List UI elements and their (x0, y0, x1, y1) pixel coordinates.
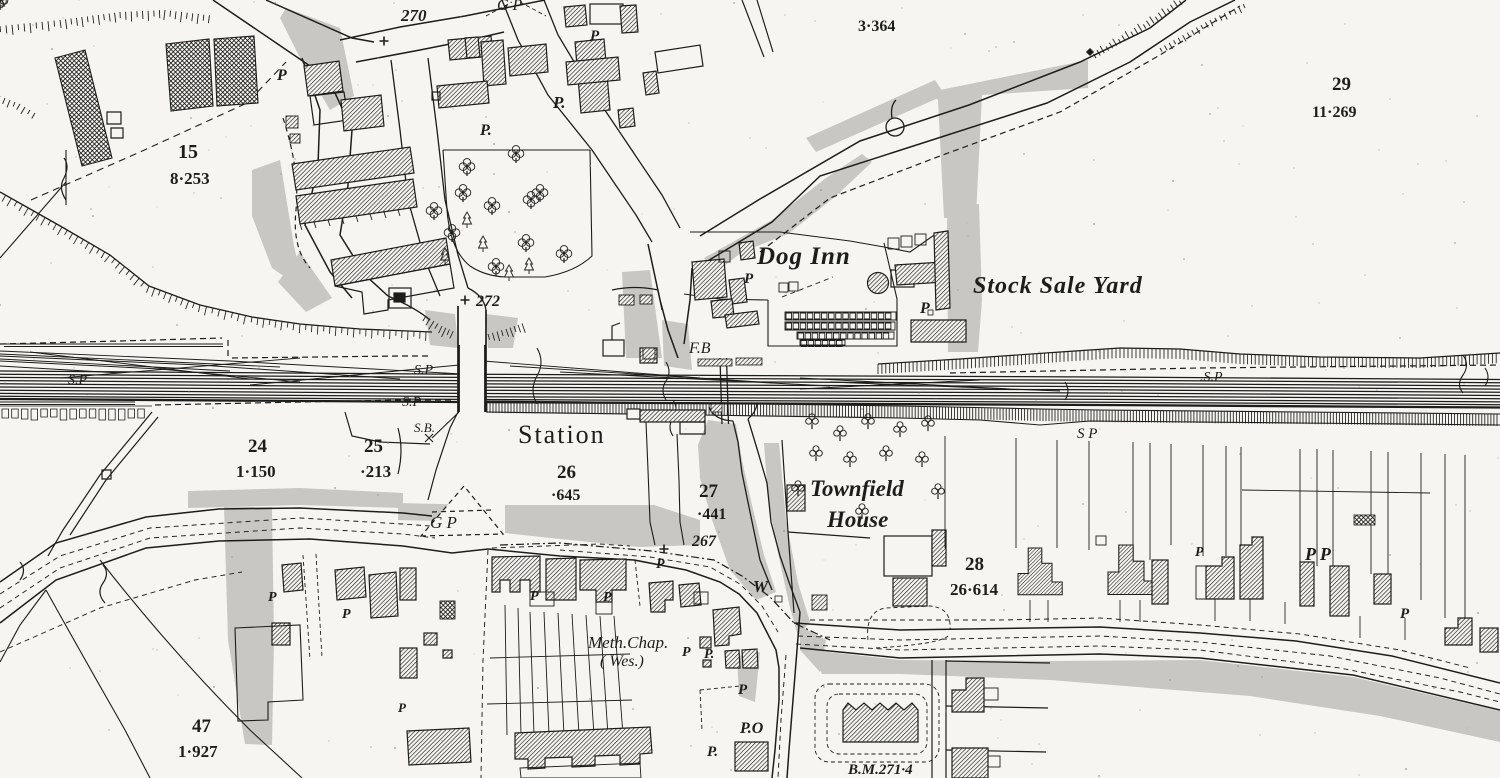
svg-text:25: 25 (364, 436, 383, 457)
svg-text:28: 28 (965, 554, 984, 575)
svg-text:29: 29 (1332, 74, 1351, 95)
svg-text:S.P: S.P (414, 363, 434, 378)
svg-text:P: P (268, 590, 277, 605)
svg-text:3·364: 3·364 (858, 18, 895, 35)
svg-text:P: P (1400, 606, 1410, 622)
svg-text:P: P (530, 589, 539, 604)
svg-text:P: P (682, 645, 691, 660)
svg-text:47: 47 (192, 716, 212, 737)
svg-text:P.: P. (707, 744, 718, 760)
svg-text:11·269: 11·269 (1312, 104, 1356, 121)
svg-text:27: 27 (699, 481, 719, 502)
svg-text:P P: P P (1304, 544, 1332, 564)
svg-text:P: P (398, 700, 407, 715)
svg-text:1·927: 1·927 (178, 742, 218, 761)
svg-text:272: 272 (475, 293, 500, 310)
svg-text:S.B.: S.B. (414, 420, 435, 435)
svg-text:B.M.271·4: B.M.271·4 (847, 762, 913, 778)
svg-text:S.P: S.P (68, 373, 88, 388)
svg-text:W: W (753, 577, 770, 596)
svg-text:S P: S P (1077, 426, 1097, 442)
svg-text:26: 26 (557, 462, 576, 483)
svg-text:15: 15 (178, 141, 198, 163)
svg-text:P: P (738, 682, 748, 698)
svg-text:Dog Inn: Dog Inn (756, 243, 851, 270)
svg-text:P: P (744, 271, 754, 287)
svg-text:G P: G P (497, 0, 523, 14)
svg-text:Meth.Chap.: Meth.Chap. (587, 633, 668, 652)
svg-text:P.O: P.O (739, 720, 764, 737)
svg-text:P.: P. (704, 647, 714, 662)
svg-text:P: P (656, 557, 665, 572)
svg-text:.S.P: .S.P (1200, 370, 1223, 385)
svg-text:P: P (342, 607, 351, 622)
svg-text:·645: ·645 (551, 487, 580, 504)
svg-text:24: 24 (248, 436, 268, 457)
svg-text:P.: P. (552, 93, 565, 112)
svg-text:S.P: S.P (402, 395, 422, 410)
svg-text:·213: ·213 (360, 462, 391, 481)
svg-text:Station: Station (518, 420, 606, 449)
svg-text:Townfield: Townfield (810, 476, 904, 501)
svg-text:( Wes.): ( Wes.) (600, 653, 644, 670)
svg-text:P: P (603, 590, 612, 605)
svg-text:Stock Sale Yard: Stock Sale Yard (973, 273, 1143, 299)
svg-text:House: House (826, 507, 888, 532)
svg-text:P: P (1195, 545, 1204, 560)
svg-text:P: P (276, 67, 287, 84)
svg-text:1·150: 1·150 (236, 462, 276, 481)
svg-text:26·614: 26·614 (950, 580, 999, 599)
svg-text:P: P (590, 28, 600, 44)
svg-text:267: 267 (691, 533, 717, 550)
svg-text:P: P (919, 300, 930, 317)
svg-text:F.B: F.B (688, 340, 711, 357)
svg-text:G P: G P (430, 513, 457, 532)
svg-text:8·253: 8·253 (170, 169, 210, 188)
svg-text:P.: P. (479, 122, 492, 139)
svg-text:·441: ·441 (697, 506, 726, 523)
svg-text:270: 270 (400, 6, 427, 25)
